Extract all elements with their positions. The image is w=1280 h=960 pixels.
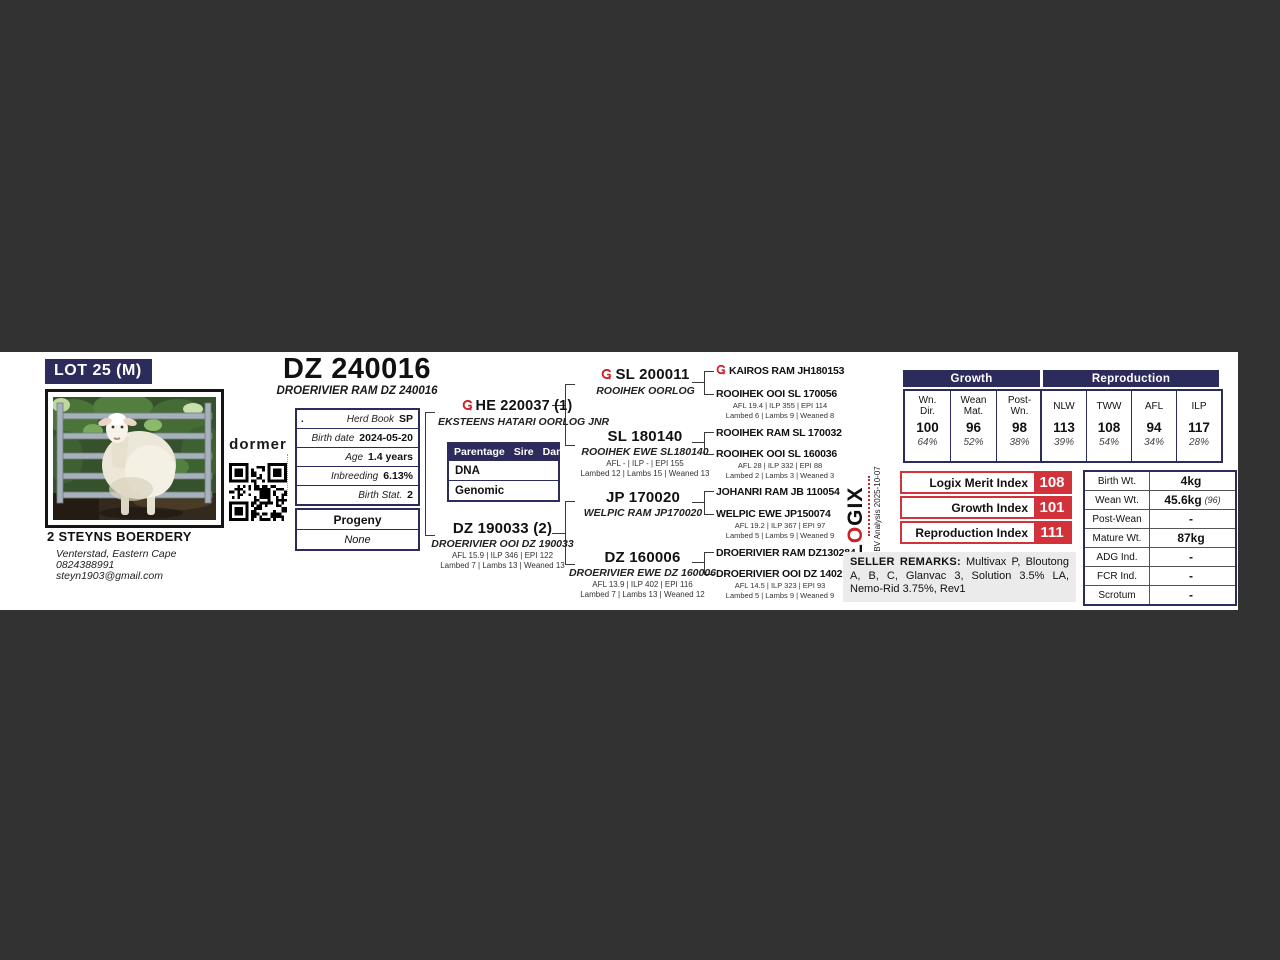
catalog-card: LOT 25 (M) <box>0 352 1238 610</box>
weight-row-post-wean: Post-Wean - <box>1085 510 1235 529</box>
ebv-cell-wn-dir: Wn.Dir. 100 64% <box>905 391 951 461</box>
ram-photo <box>53 397 216 520</box>
pedigree-node-g3-5: JOHANRI RAM JB 110054 <box>716 486 851 498</box>
detail-row-birth-status: Birth Stat. 2 <box>297 486 418 504</box>
growth-ebv-table: Wn.Dir. 100 64% WeanMat. 96 52% Post-Wn.… <box>903 389 1044 463</box>
weight-row-mature: Mature Wt. 87kg <box>1085 529 1235 548</box>
reproduction-index-row: Reproduction Index 111 <box>900 521 1072 544</box>
progeny-box: Progeny None <box>295 508 420 551</box>
ebv-cell-post-wn: Post-Wn. 98 38% <box>997 391 1042 461</box>
pedigree-node-g3-3: ROOIHEK RAM SL 170032 <box>716 427 851 439</box>
seller-remarks: SELLER REMARKS: Multivax P, Bloutong A, … <box>843 552 1076 602</box>
breeder-name: 2 STEYNS BOERDERY <box>47 529 192 544</box>
ebv-cell-wean-mat: WeanMat. 96 52% <box>951 391 997 461</box>
reproduction-section-header: Reproduction <box>1043 370 1219 387</box>
pedigree-node-g3-2: ROOIHEK OOI SL 170056 AFL 19.4 | ILP 355… <box>716 388 851 420</box>
pedigree-node-g3-1: KAIROS RAM JH180153 <box>716 365 851 378</box>
pedigree-node-sire-sire: SL 200011 ROOIHEK OORLOG <box>578 366 713 397</box>
ebv-cell-afl: AFL 94 34% <box>1132 391 1177 461</box>
pedigree-node-dam-dam: DZ 160006 DROERIVIER EWE DZ 160006 AFL 1… <box>560 549 725 599</box>
parentage-row-genomic: Genomic <box>449 481 558 500</box>
breeder-email: steyn1903@gmail.com <box>56 570 163 582</box>
detail-prefix-dot: . <box>301 414 304 425</box>
pedigree-bracket-main <box>425 412 435 536</box>
detail-row-birth-date: Birth date 2024-05-20 <box>297 429 418 448</box>
parentage-row-dna: DNA <box>449 461 558 481</box>
genomics-icon <box>601 367 612 384</box>
logix-logo: LOGIX EBV Analysis 2025-10-07 <box>845 462 893 557</box>
reproduction-ebv-table: NLW 113 39% TWW 108 54% AFL 94 34% ILP 1… <box>1040 389 1223 463</box>
weight-row-fcr: FCR Ind. - <box>1085 567 1235 586</box>
weights-table: Birth Wt. 4kg Wean Wt. 45.6kg(96) Post-W… <box>1083 470 1237 606</box>
animal-photo-frame <box>45 389 224 528</box>
parentage-verification-box: Parentage Sire Dam DNA Genomic <box>447 442 560 502</box>
parentage-header: Parentage Sire Dam <box>447 442 560 461</box>
progeny-value: None <box>297 530 418 549</box>
pedigree-node-g3-7: DROERIVIER RAM DZ130284 <box>716 547 851 559</box>
pedigree-node-sire: HE 220037 (1) EKSTEENS HATARI OORLOG JNR <box>438 398 596 428</box>
growth-index-row: Growth Index 101 <box>900 496 1072 519</box>
pedigree-node-dam-sire: JP 170020 WELPIC RAM JP170020 <box>568 489 718 519</box>
fine-print-vertical <box>287 454 288 496</box>
catalog-page: { "colors": {"navy": "#2b2c5b", "red": "… <box>0 0 1280 960</box>
qr-code <box>229 463 287 521</box>
pedigree-node-g3-4: ROOIHEK OOI SL 160036 AFL 28 | ILP 332 |… <box>716 448 851 480</box>
pedigree-node-g3-6: WELPIC EWE JP150074 AFL 19.2 | ILP 367 |… <box>716 508 851 540</box>
animal-full-name: DROERIVIER RAM DZ 240016 <box>252 385 462 397</box>
progeny-title: Progeny <box>297 510 418 530</box>
weight-row-birth: Birth Wt. 4kg <box>1085 472 1235 491</box>
animal-details-table: . Herd Book SP Birth date 2024-05-20 Age… <box>295 408 420 506</box>
ebv-cell-ilp: ILP 117 28% <box>1177 391 1221 461</box>
growth-section-header: Growth <box>903 370 1040 387</box>
growth-index-value: 101 <box>1034 498 1070 517</box>
reproduction-index-value: 111 <box>1034 523 1070 542</box>
detail-row-herd-book: . Herd Book SP <box>297 410 418 429</box>
pedigree-node-g3-8: DROERIVIER OOI DZ 140210 AFL 14.5 | ILP … <box>716 568 851 600</box>
ebv-cell-nlw: NLW 113 39% <box>1042 391 1087 461</box>
logix-tagline <box>868 476 870 536</box>
weight-row-scrotum: Scrotum - <box>1085 586 1235 604</box>
detail-row-age: Age 1.4 years <box>297 448 418 467</box>
ebv-analysis-date: EBV Analysis 2025-10-07 <box>873 462 883 557</box>
ebv-cell-tww: TWW 108 54% <box>1087 391 1132 461</box>
weight-row-adg: ADG Ind. - <box>1085 548 1235 567</box>
pedigree-node-sire-dam: SL 180140 ROOIHEK EWE SL180140 AFL - | I… <box>565 428 725 478</box>
genomics-icon <box>462 399 473 415</box>
logix-merit-index-row: Logix Merit Index 108 <box>900 471 1072 494</box>
animal-id-title: DZ 240016 <box>278 353 436 386</box>
weight-row-wean: Wean Wt. 45.6kg(96) <box>1085 491 1235 510</box>
logix-merit-index-value: 108 <box>1034 473 1070 492</box>
dormer-breed-logo: dormer <box>226 436 290 453</box>
genomics-icon <box>716 365 726 378</box>
detail-row-inbreeding: Inbreeding 6.13% <box>297 467 418 486</box>
lot-number-badge: LOT 25 (M) <box>45 359 152 384</box>
